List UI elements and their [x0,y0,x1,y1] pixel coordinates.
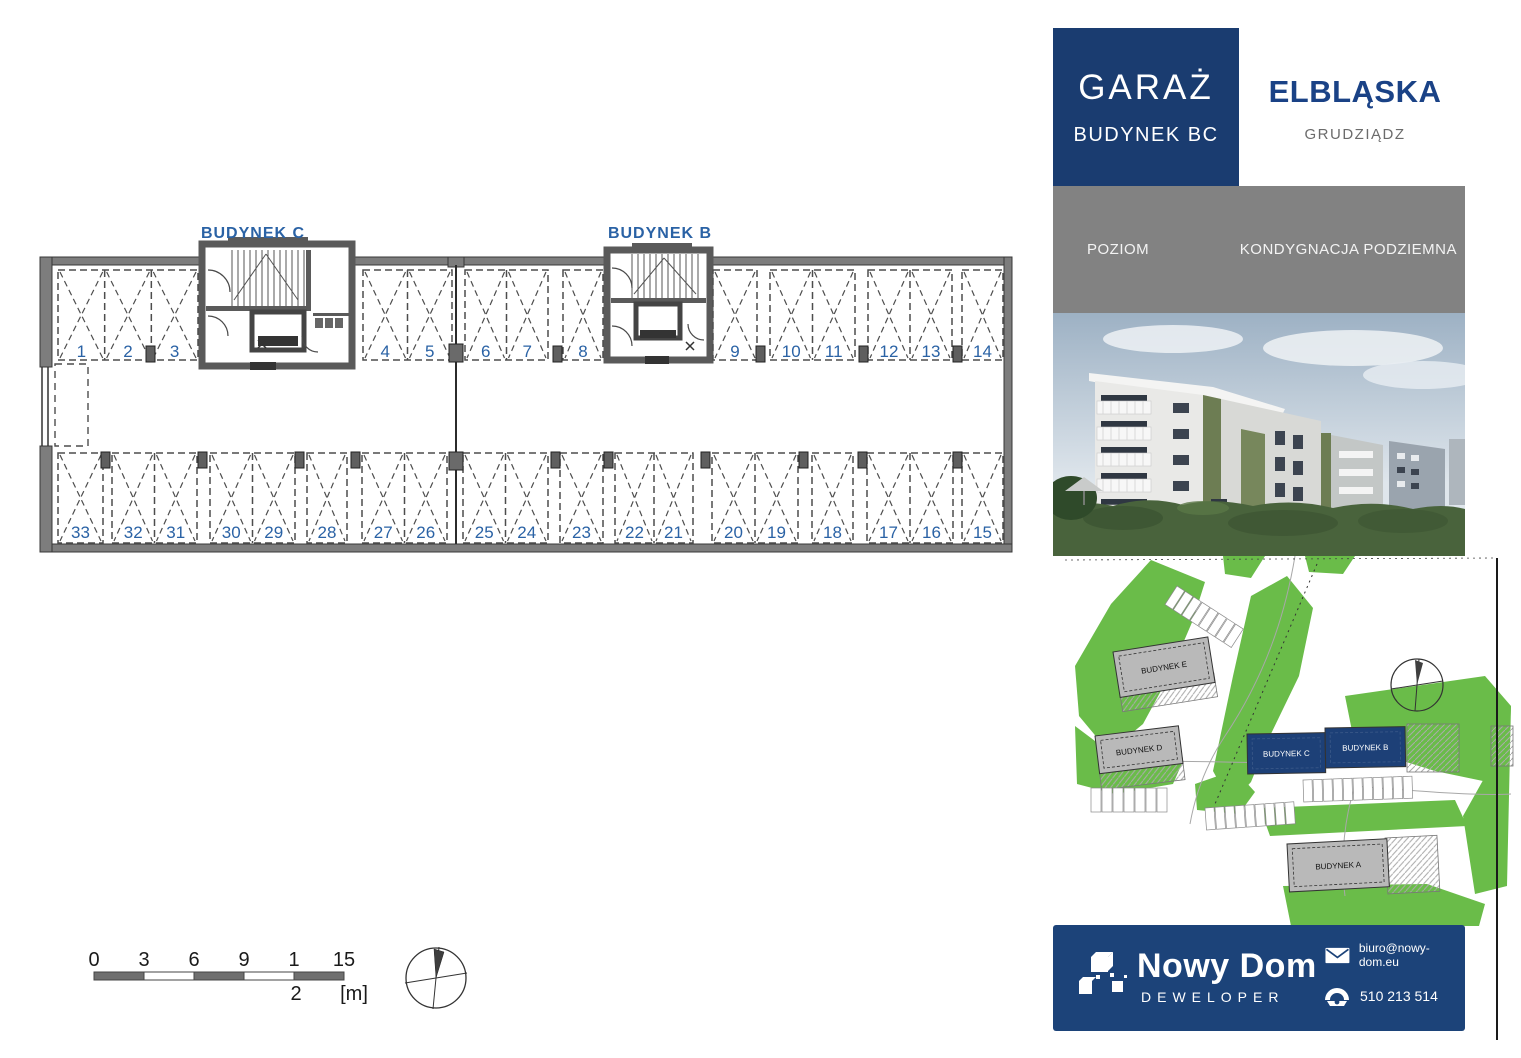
scale-tick: 0 [88,949,99,971]
parking-spot[interactable]: 33 [60,455,101,542]
parking-group: 15 [962,453,1003,543]
parking-spot-number: 29 [264,523,283,542]
parking-spot-number: 10 [782,342,801,361]
parking-spot-number: 8 [578,342,587,361]
parking-spot-number: 28 [318,523,337,542]
parking-spot[interactable]: 14 [964,272,1001,361]
site-building[interactable]: BUDYNEK B [1325,727,1406,768]
level-value: KONDYGNACJA PODZIEMNA [1240,241,1457,258]
parking-spot-number: 1 [77,342,86,361]
parking-spot[interactable]: 7 [509,272,547,361]
parking-group: 1213 [868,270,952,361]
project-name: ELBLĄSKA [1245,74,1465,110]
site-building[interactable]: BUDYNEK A [1287,839,1389,892]
garage-gate-opening [42,367,48,446]
balconies [1097,395,1151,518]
parking-spot[interactable]: 26 [407,455,446,542]
parking-spot[interactable]: 16 [912,455,951,542]
parking-spot[interactable]: 27 [364,455,403,542]
scale-tick: 3 [138,949,149,971]
company-role: DEWELOPER [1141,989,1284,1005]
parking-spot-number: 13 [922,342,941,361]
parking-spot[interactable]: 19 [757,455,796,542]
north-compass [403,936,475,1020]
plan-subtitle: BUDYNEK BC [1073,124,1218,147]
scale-tick: 1 [288,949,299,971]
parking-group: 33 [58,453,103,543]
parking-spot-number: 32 [124,523,143,542]
parking-group: 28 [307,453,347,543]
parking-spot[interactable]: 10 [772,272,811,361]
parking-spot[interactable]: 32 [114,455,153,542]
parking-spot-number: 7 [523,342,532,361]
parking-group: 1716 [867,453,953,543]
parking-spot-number: 18 [823,523,842,542]
parking-spot[interactable]: 15 [964,455,1001,542]
phone-icon [1323,985,1351,1007]
parking-spot-number: 27 [374,523,393,542]
parking-spot-number: 19 [767,523,786,542]
parking-group: 2019 [712,453,798,543]
parking-spot-number: 31 [166,523,185,542]
site-building-label: BUDYNEK C [1263,749,1310,759]
parking-spot[interactable]: 6 [467,272,505,361]
parking-spot[interactable]: 20 [714,455,753,542]
parking-spot-number: 16 [922,523,941,542]
email-row[interactable]: biuro@nowy-dom.eu [1325,941,1465,969]
phone-text[interactable]: 510 213 514 [1360,988,1438,1004]
scale-tick: 6 [188,949,199,971]
nowy-dom-logo-icon [1079,949,1127,1001]
developer-footer: Nowy Dom DEWELOPER biuro@nowy-dom.eu 510… [1053,925,1465,1031]
parking-group: 123 [58,270,198,361]
email-text[interactable]: biuro@nowy-dom.eu [1359,941,1465,969]
parking-spot[interactable]: 1 [60,272,103,361]
parking-spot[interactable]: 4 [365,272,406,361]
parking-spot-number: 12 [880,342,899,361]
parking-spot[interactable]: 28 [309,455,345,542]
parking-group: 9 [713,270,757,361]
parking-group: 1011 [770,270,855,361]
site-building[interactable]: BUDYNEK C [1247,733,1326,774]
level-bar: POZIOM KONDYGNACJA PODZIEMNA [1053,186,1465,313]
plan-title-box: GARAŻ BUDYNEK BC [1053,28,1239,186]
project-city: GRUDZIĄDZ [1245,126,1465,143]
ramp-dashed-area [55,364,88,446]
parking-spot[interactable]: 30 [212,455,251,542]
parking-spot[interactable]: 8 [565,272,601,361]
parking-group: 2524 [463,453,548,543]
budynek-b-label: BUDYNEK B [608,225,712,242]
envelope-icon [1325,947,1350,964]
parking-spot-number: 6 [481,342,490,361]
parking-group: 23 [560,453,603,543]
parking-spot[interactable]: 24 [508,455,547,542]
parking-spot[interactable]: 21 [656,455,691,542]
parking-spot[interactable]: 31 [157,455,196,542]
parking-spot[interactable]: 9 [715,272,755,361]
parking-spot[interactable]: 3 [153,272,196,361]
core-budynek-b [607,243,710,364]
budynek-c-label: BUDYNEK C [201,225,305,242]
parking-group: 14 [962,270,1003,361]
parking-spot-number: 14 [973,342,992,361]
page: BUDYNEK C BUDYNEK B 12345678910111213143… [0,0,1521,1058]
parking-spot-number: 21 [664,523,683,542]
parking-spot-number: 25 [475,523,494,542]
site-building-label: BUDYNEK B [1342,743,1388,753]
phone-row[interactable]: 510 213 514 [1323,985,1438,1007]
parking-group: 18 [812,453,853,543]
parking-spot-number: 17 [879,523,898,542]
parking-group: 2221 [615,453,693,543]
building-photo [1053,313,1465,556]
parking-spot-number: 15 [973,523,992,542]
plan-title: GARAŻ [1078,68,1214,108]
parking-spot[interactable]: 18 [814,455,851,542]
scale-bar: 0 3 6 9 1 15 2 [m] [82,938,382,1010]
parking-spot[interactable]: 12 [870,272,908,361]
parking-group: 45 [363,270,452,361]
parking-group: 67 [465,270,548,361]
parking-spot-number: 20 [724,523,743,542]
parking-spot-number: 30 [222,523,241,542]
parking-spot-number: 3 [170,342,179,361]
parking-spot-number: 22 [625,523,644,542]
parking-group: 2726 [362,453,447,543]
parking-spot[interactable]: 11 [815,272,854,361]
parking-spot-number: 23 [572,523,591,542]
parking-spot-number: 2 [123,342,132,361]
core-budynek-c [202,237,352,370]
parking-spot[interactable]: 17 [869,455,908,542]
parking-spot-number: 4 [381,342,390,361]
garage-walls [40,257,1012,552]
scale-tick-wrapped: 2 [290,983,301,1005]
parking-spot-number: 26 [416,523,435,542]
parking-group: 8 [563,270,603,361]
floor-plan-svg: BUDYNEK C BUDYNEK B 12345678910111213143… [30,216,1025,562]
parking-group: 3231 [112,453,197,543]
parking-spot[interactable]: 29 [255,455,294,542]
north-needle [434,949,444,978]
parking-spot[interactable]: 22 [617,455,652,542]
sheet-boundary-line [1496,558,1498,1040]
parking-spot-number: 11 [825,342,843,361]
site-plan: BUDYNEK EBUDYNEK DBUDYNEK CBUDYNEK BBUDY… [1055,556,1521,928]
scale-tick: 15 [333,949,355,971]
scale-unit: [m] [340,983,368,1005]
parking-spot[interactable]: 23 [562,455,601,542]
parking-spot[interactable]: 2 [107,272,150,361]
parking-spot-number: 9 [730,342,739,361]
scale-tick: 9 [238,949,249,971]
parking-spot-number: 33 [71,523,90,542]
parking-spot-number: 5 [425,342,434,361]
parking-group: 3029 [210,453,295,543]
parking-spot-number: 24 [517,523,536,542]
project-box: ELBLĄSKA GRUDZIĄDZ [1245,28,1465,186]
parking-spot[interactable]: 13 [912,272,950,361]
parking-spot[interactable]: 25 [465,455,504,542]
parking-spot[interactable]: 5 [410,272,451,361]
company-name: Nowy Dom [1137,947,1317,986]
level-label: POZIOM [1087,241,1149,258]
